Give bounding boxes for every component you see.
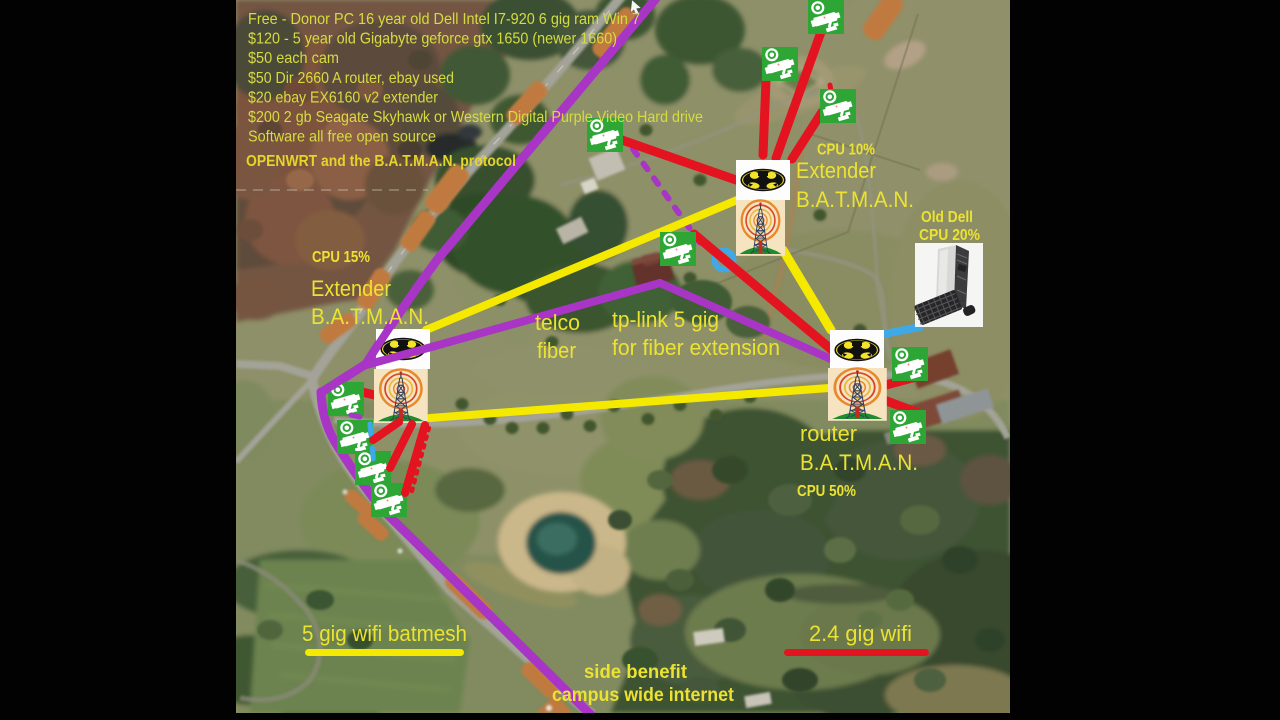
svg-text:for fiber extension: for fiber extension [612,335,780,360]
svg-text:B.A.T.M.A.N.: B.A.T.M.A.N. [796,187,914,212]
svg-text:Extender: Extender [311,276,391,301]
svg-text:tp-link 5 gig: tp-link 5 gig [612,307,719,332]
svg-text:B.A.T.M.A.N.: B.A.T.M.A.N. [800,450,918,475]
svg-text:CPU 10%: CPU 10% [817,142,875,159]
svg-text:Free - Donor PC 16 year old De: Free - Donor PC 16 year old Dell Intel I… [248,11,640,28]
svg-text:2.4 gig wifi: 2.4 gig wifi [809,621,912,646]
svg-text:Extender: Extender [796,158,876,183]
svg-text:campus wide internet: campus wide internet [552,685,735,706]
svg-text:fiber: fiber [537,338,576,363]
svg-text:CPU 50%: CPU 50% [797,483,856,500]
svg-text:OPENWRT and the B.A.T.M.A.N. p: OPENWRT and the B.A.T.M.A.N. protocol [246,153,516,170]
svg-text:$120 - 5 year old Gigabyte gef: $120 - 5 year old Gigabyte geforce gtx 1… [248,31,617,48]
svg-text:router: router [800,421,857,446]
svg-text:5 gig wifi batmesh: 5 gig wifi batmesh [302,621,467,646]
svg-text:CPU 20%: CPU 20% [919,227,980,244]
svg-text:Software all free open source: Software all free open source [248,129,436,146]
svg-text:side benefit: side benefit [584,662,688,683]
svg-text:B.A.T.M.A.N.: B.A.T.M.A.N. [311,304,429,329]
svg-text:CPU 15%: CPU 15% [312,249,370,266]
svg-text:Old Dell: Old Dell [921,209,973,226]
svg-text:$50 Dir 2660 A router, ebay us: $50 Dir 2660 A router, ebay used [248,70,454,87]
svg-text:telco: telco [535,310,580,335]
svg-text:$20 ebay EX6160 v2 extender: $20 ebay EX6160 v2 extender [248,89,439,106]
svg-text:$200 2 gb Seagate Skyhawk or W: $200 2 gb Seagate Skyhawk or Western Dig… [248,109,703,126]
svg-text:$50 each cam: $50 each cam [248,50,339,67]
